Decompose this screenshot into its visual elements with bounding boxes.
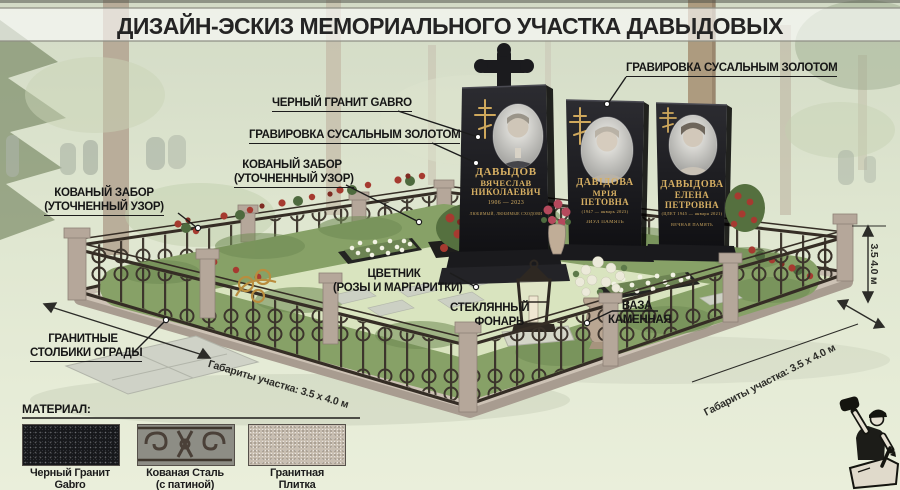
label-black-granite: ЧЕРНЫЙ ГРАНИТ GABRO [272,96,412,112]
swatch-label-tile: ГранитнаяПлитка [242,467,352,490]
monument-1-inscription: ДАВЫДОВ ВЯЧЕСЛАВ НИКОЛАЕВИЧ 1906 — 2023 … [460,167,552,216]
swatch-label-steel: Кованая Сталь(с патиной) [130,467,240,490]
design-sketch-poster: ДИЗАЙН-ЭСКИЗ МЕМОРИАЛЬНОГО УЧАСТКА ДАВЫД… [0,0,900,490]
materials-heading: МАТЕРИАЛ: [22,402,91,417]
wrought-steel-pattern-icon [138,425,232,463]
page-title: ДИЗАЙН-ЭСКИЗ МЕМОРИАЛЬНОГО УЧАСТКА ДАВЫД… [0,13,900,40]
label-engraving-left: ГРАВИРОВКА СУСАЛЬНЫМ ЗОЛОТОМ [249,128,460,144]
top-edge [0,0,900,3]
label-fence-center: КОВАНЫЙ ЗАБОР (УТОЧНЕННЫЙ УЗОР) [234,158,350,188]
label-fence-left: КОВАНЫЙ ЗАБОР (УТОЧНЕННЫЙ УЗОР) [28,186,180,216]
swatch-label-granite: Черный ГранитGabro [15,467,125,490]
label-flowerbed: ЦВЕТНИК (РОЗЫ И МАРГАРИТКИ) [333,267,455,295]
label-vase: ВАЗА КАМЕННАЯ [608,299,666,327]
monument-3-inscription: ДАВЫДОВА ЕЛЕНА ПЕТРОВНА (ЦЛЕТ 1945 — янв… [654,180,730,228]
swatch-wrought-steel [137,424,235,466]
monument-2-inscription: ДАВІДОВА МРІЯ ПЕТОВНА (1947 — январь 202… [566,178,644,226]
label-granite-posts: ГРАНИТНЫЕ СТОЛБИКИ ОГРАДЫ [30,332,136,362]
swatch-granite-tile [248,424,346,466]
swatch-black-granite [22,424,120,466]
label-lantern: СТЕКЛЯННЫЙ ФОНАРЬ [450,301,524,329]
rosebush-right [725,184,765,232]
label-engraving-right: ГРАВИРОВКА СУСАЛЬНЫМ ЗОЛОТОМ [626,61,837,77]
materials-rule [22,417,360,419]
dimension-height-right: 3.5 4.0 м [868,226,880,302]
